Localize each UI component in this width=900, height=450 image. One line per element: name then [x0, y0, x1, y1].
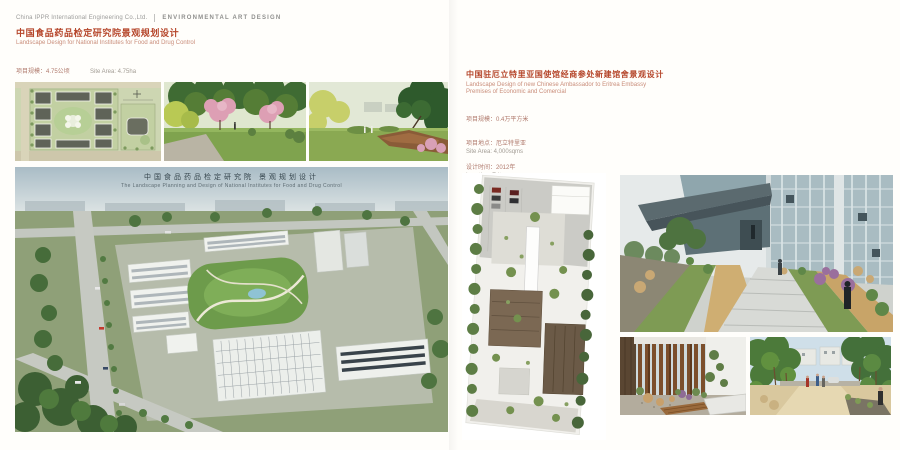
project2-title-zh: 中国驻厄立特里亚国使馆经商参处新建馆舍景观设计	[466, 70, 696, 80]
person-figure	[844, 281, 851, 309]
meta-line: Site Area: 4.75ha	[90, 68, 140, 76]
header-department: ENVIRONMENTAL ART DESIGN	[162, 15, 281, 21]
meta-line: Site Area: 4,000sqms	[466, 148, 528, 156]
page-gutter	[449, 0, 461, 450]
project1-title-block: 中国食品药品检定研究院景观规划设计 Landscape Design for N…	[16, 28, 195, 47]
page-header: China IPPR International Engineering Co.…	[16, 14, 281, 22]
embassy-courtyard-rendering-image	[620, 175, 893, 332]
tree-allee-path-rendering-image	[750, 337, 891, 415]
header-divider	[154, 14, 155, 22]
meta-line: 项目规模：0.4万平方米	[466, 116, 528, 124]
project1-title-zh: 中国食品药品检定研究院景观规划设计	[16, 28, 195, 38]
project2-title-en-2: Premises of Economic and Comercial	[466, 89, 696, 96]
project2-title-block: 中国驻厄立特里亚国使馆经商参处新建馆舍景观设计 Landscape Design…	[466, 70, 696, 96]
portfolio-spread: China IPPR International Engineering Co.…	[0, 0, 900, 450]
timber-screen-garden-rendering-image	[620, 337, 746, 415]
park-vista-rendering-image	[309, 82, 448, 161]
park-blossom-rendering-image	[164, 82, 306, 161]
meta-line: 项目规模：4.75公顷	[16, 68, 70, 76]
site-master-plan-image	[15, 82, 161, 161]
embassy-site-plan-image	[462, 173, 606, 440]
campus-aerial-rendering-image: 中国食品药品检定研究院 景观规划设计 The Landscape Plannin…	[15, 167, 448, 432]
header-company: China IPPR International Engineering Co.…	[16, 15, 147, 21]
project1-title-en: Landscape Design for National Institutes…	[16, 40, 195, 47]
project2-title-en-1: Landscape Design of new Chinese Ambassad…	[466, 82, 696, 89]
